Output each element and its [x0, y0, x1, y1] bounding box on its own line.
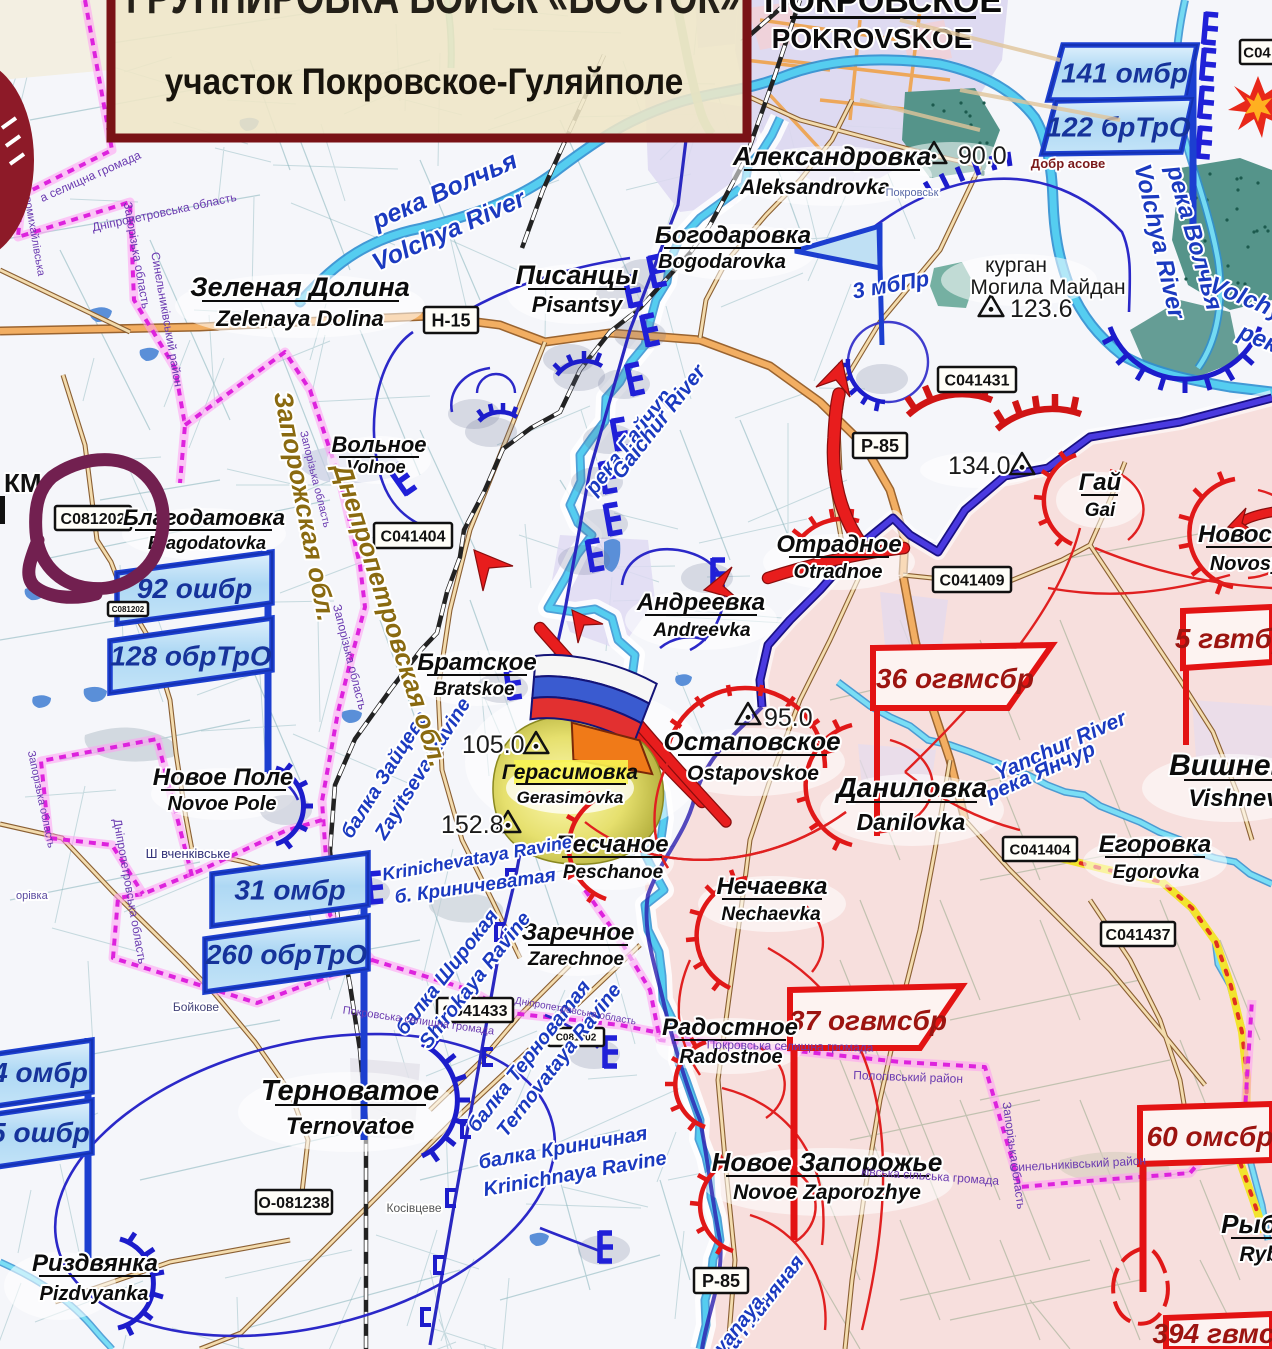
svg-text:Zelenaya Dolina: Zelenaya Dolina [215, 306, 384, 331]
svg-text:260 обрТрО: 260 обрТрО [205, 939, 368, 970]
svg-text:С041437: С041437 [1106, 927, 1171, 944]
svg-text:Ternovatoe: Ternovatoe [286, 1113, 414, 1140]
svg-text:Zarechnoe: Zarechnoe [527, 949, 625, 970]
svg-text:60 омсбр: 60 омсбр [1147, 1121, 1272, 1152]
svg-text:Novoe Pole: Novoe Pole [168, 793, 277, 815]
svg-text:Aleksandrovka: Aleksandrovka [739, 176, 890, 199]
svg-text:Радостное: Радостное [662, 1014, 798, 1041]
svg-text:О-081238: О-081238 [258, 1195, 329, 1212]
svg-text:С041404: С041404 [1010, 841, 1072, 858]
svg-text:курган: курган [985, 254, 1047, 277]
svg-text:141 омбр: 141 омбр [1061, 57, 1188, 88]
svg-text:Гай: Гай [1079, 469, 1122, 496]
svg-text:Pisantsy: Pisantsy [532, 292, 624, 317]
svg-text:Богодаровка: Богодаровка [655, 222, 811, 249]
svg-text:Rybnoe: Rybnoe [1239, 1243, 1272, 1266]
svg-text:Bogodarovka: Bogodarovka [658, 251, 786, 273]
svg-text:5 ошбр: 5 ошбр [0, 1117, 90, 1148]
svg-text:Bratskoe: Bratskoe [433, 679, 515, 700]
svg-text:Риздвянка: Риздвянка [32, 1250, 158, 1277]
svg-text:С081202: С081202 [112, 605, 145, 614]
svg-text:Косівцеве: Косівцеве [386, 1201, 441, 1215]
svg-text:122 брТрО: 122 брТрО [1046, 111, 1190, 142]
svg-text:Р-85: Р-85 [861, 436, 899, 456]
svg-text:105.0: 105.0 [462, 731, 525, 759]
svg-text:Песчаное: Песчаное [555, 831, 668, 858]
svg-text:37 огвмсбр: 37 огвмсбр [789, 1005, 947, 1036]
svg-text:Новое Поле: Новое Поле [153, 764, 293, 791]
svg-text:Н-15: Н-15 [431, 310, 470, 330]
svg-text:Герасимовка: Герасимовка [502, 761, 638, 784]
svg-text:Gai: Gai [1085, 500, 1116, 521]
svg-text:Новосёлка: Новосёлка [1198, 521, 1272, 548]
svg-text:Александровка: Александровка [732, 141, 931, 171]
svg-text:Nechaevka: Nechaevka [721, 904, 821, 925]
svg-text:Андреевка: Андреевка [636, 589, 765, 616]
svg-text:Р-85: Р-85 [702, 1271, 740, 1291]
svg-text:90.0: 90.0 [958, 142, 1007, 170]
svg-text:С041404: С041404 [381, 528, 446, 545]
svg-text:С04: С04 [1243, 44, 1271, 61]
svg-text:Егоровка: Егоровка [1099, 831, 1212, 858]
svg-text:152.8: 152.8 [441, 811, 504, 839]
svg-text:134.0: 134.0 [948, 452, 1011, 480]
svg-text:Добр асове: Добр асове [1031, 156, 1105, 171]
svg-text:Нечаевка: Нечаевка [716, 873, 827, 900]
svg-text:Otradnoe: Otradnoe [794, 561, 883, 583]
svg-text:Рыбное: Рыбное [1221, 1209, 1272, 1239]
svg-text:Вольное: Вольное [331, 432, 426, 457]
svg-text:Pizdvyanka: Pizdvyanka [40, 1283, 149, 1305]
svg-text:С041409: С041409 [940, 572, 1005, 589]
svg-text:Зеленая Долина: Зеленая Долина [190, 272, 409, 302]
svg-text:Danilovka: Danilovka [857, 809, 966, 835]
svg-text:Бойкове: Бойкове [173, 1000, 220, 1014]
svg-text:92 ошбр: 92 ошбр [137, 573, 252, 604]
svg-text:Ostapovskoe: Ostapovskoe [687, 762, 819, 785]
svg-text:С041431: С041431 [945, 372, 1010, 389]
svg-text:31 омбр: 31 омбр [234, 874, 345, 905]
svg-text:Остаповское: Остаповское [663, 726, 840, 756]
svg-text:394 гвмсп: 394 гвмсп [1152, 1318, 1272, 1349]
svg-text:Egorovka: Egorovka [1113, 862, 1200, 883]
svg-text:128 обрТрО: 128 обрТрО [110, 640, 272, 671]
svg-text:участок Покровское-Гуляйполе: участок Покровское-Гуляйполе [165, 61, 683, 102]
svg-text:Покровська селищна громада: Покровська селищна громада [707, 1038, 874, 1055]
svg-text:Даниловка: Даниловка [835, 772, 988, 803]
svg-text:4 омбр: 4 омбр [0, 1057, 88, 1088]
svg-text:Vishnevoe: Vishnevoe [1188, 785, 1272, 812]
svg-text:5 гвтбр: 5 гвтбр [1175, 623, 1272, 654]
svg-text:Братское: Братское [417, 649, 537, 676]
svg-text:Отрадное: Отрадное [776, 531, 901, 558]
svg-text:Покровськ: Покровськ [886, 187, 939, 199]
svg-text:POKROVSKOE: POKROVSKOE [772, 23, 973, 54]
svg-text:36 огвмсбр: 36 огвмсбр [876, 663, 1034, 694]
svg-text:Gerasimovka: Gerasimovka [517, 788, 624, 807]
svg-text:Писанцы: Писанцы [516, 260, 639, 290]
svg-text:Andreevka: Andreevka [652, 620, 751, 641]
svg-text:С081202: С081202 [61, 511, 126, 528]
svg-text:Могила Майдан: Могила Майдан [970, 276, 1125, 299]
svg-text:Novoe Zaporozhye: Novoe Zaporozhye [733, 1181, 921, 1204]
svg-text:Ш вченківське: Ш вченківське [146, 846, 231, 861]
svg-text:Заречное: Заречное [522, 919, 635, 946]
svg-text:Терноватое: Терноватое [261, 1075, 439, 1107]
svg-text:орівка: орівка [16, 890, 49, 902]
svg-text:ГРУППИРОВКА ВОЙСК «ВОСТОК»: ГРУППИРОВКА ВОЙСК «ВОСТОК» [126, 0, 740, 24]
svg-text:Peschanoe: Peschanoe [563, 862, 664, 883]
svg-text:Благодатовка: Благодатовка [123, 505, 285, 530]
svg-text:Вишневое: Вишневое [1169, 749, 1272, 782]
svg-text:123.6: 123.6 [1010, 295, 1073, 323]
svg-text:Novosyolka: Novosyolka [1210, 553, 1272, 575]
